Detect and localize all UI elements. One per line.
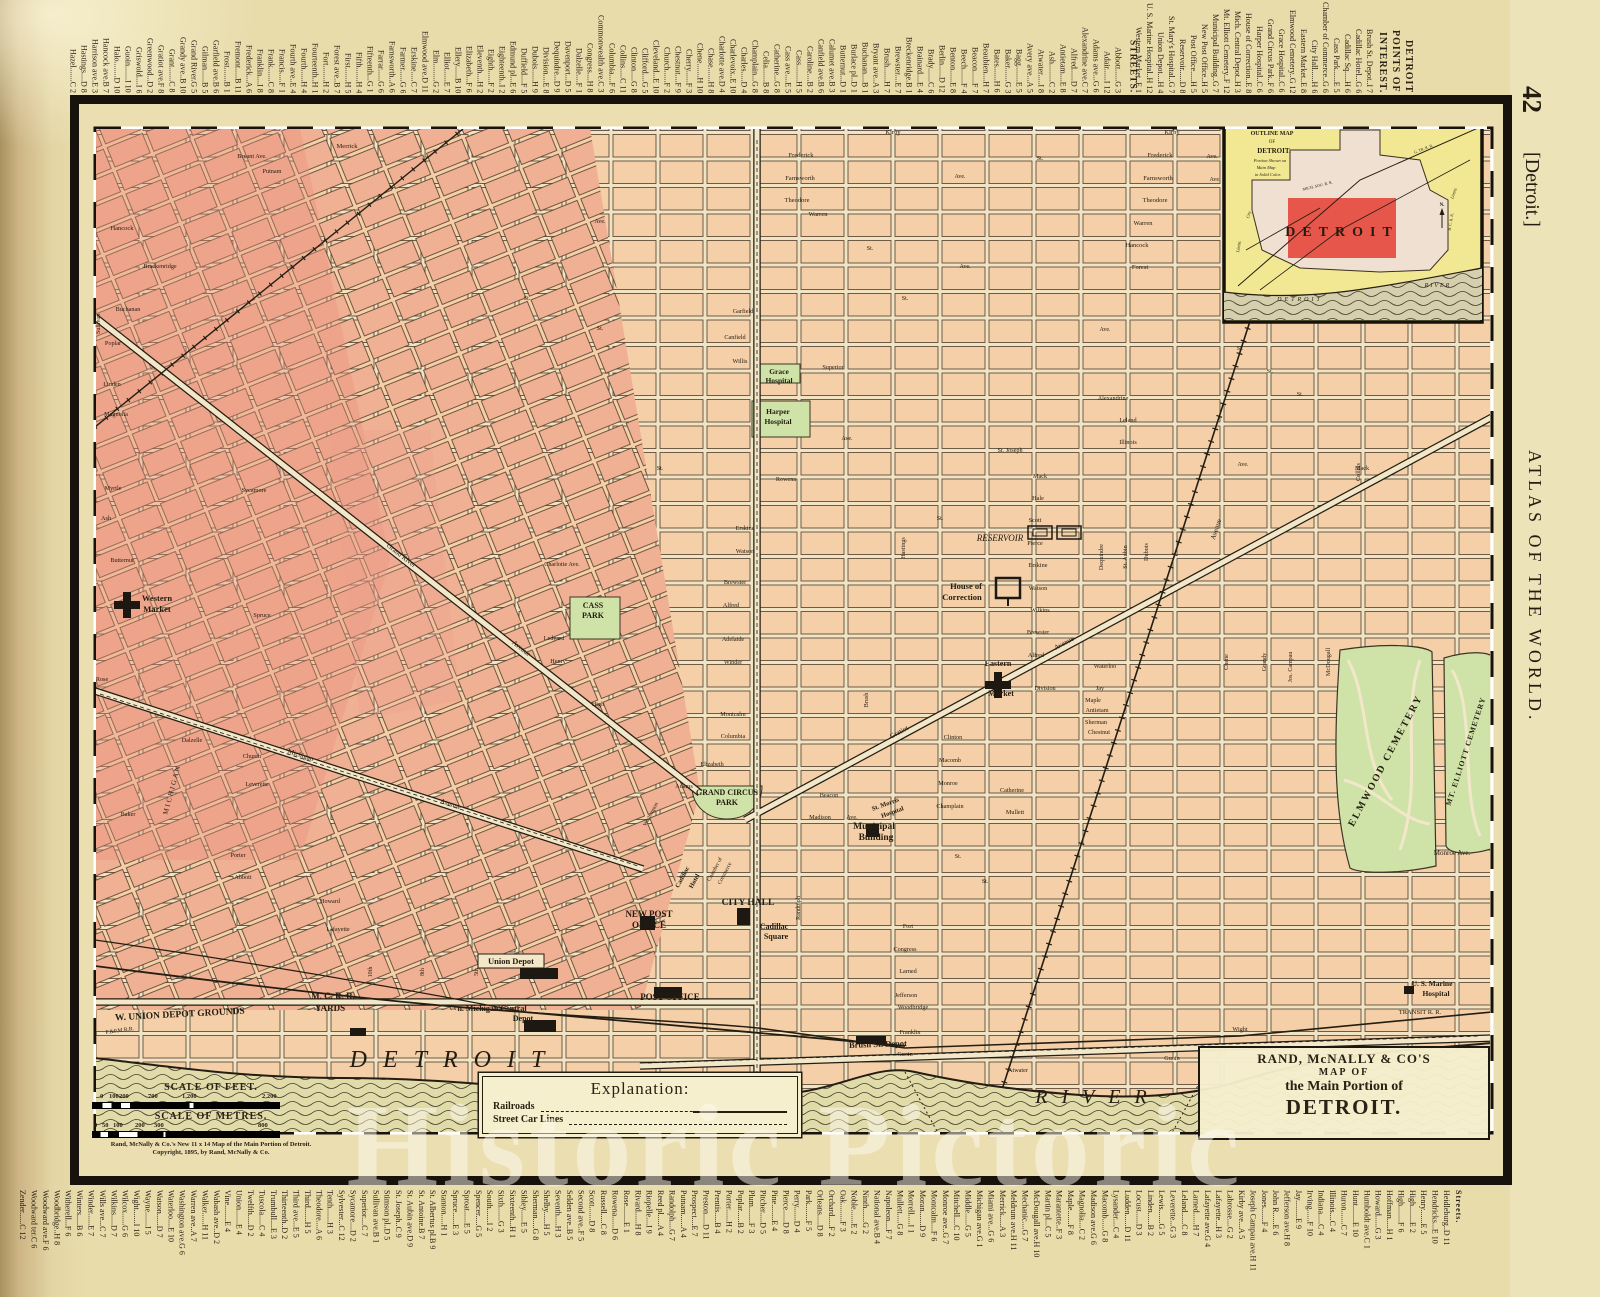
map-label: PARK (582, 611, 605, 620)
street-index-entry: Bryant ave..A 3 (870, 0, 881, 93)
map-label: CASS (583, 601, 604, 610)
legend-streetcar-label: Street Car Lines (493, 1114, 563, 1125)
map-label: St. (1267, 369, 1274, 375)
poi-entry: Chamber of Commerce..G 6 (1320, 0, 1331, 93)
scale-tick: 100 (113, 1122, 123, 1129)
scale-tick: 200 (119, 1093, 129, 1100)
street-index-entry: Breckenridge.B 1 (903, 0, 914, 93)
poi-title-line: POINTS OF (1388, 0, 1401, 93)
street-index-entry: St. Albertus pl.B 9 (427, 1190, 438, 1297)
scale-tick: 100 (109, 1093, 119, 1100)
map-label: Hospital (1422, 989, 1449, 998)
street-index-entry: Moran.......D 9 (917, 1190, 928, 1297)
street-index-entry: Shelby......H 5 (541, 1190, 552, 1297)
street-index-entry: Church......F 2 (661, 0, 672, 93)
street-index-entry: Lafayette ave.G 4 (1201, 1190, 1212, 1297)
street-index-entry: Ludden......D 11 (1122, 1190, 1133, 1297)
map-label: Ave. (846, 814, 858, 821)
map-label: Chestnut (1088, 729, 1110, 736)
map-label: Brewster (1027, 629, 1049, 636)
street-index-entry: Fremont.....B 11 (232, 0, 243, 93)
street-index-entry: Tuscola.....C 4 (256, 1190, 267, 1297)
map-label: Dubois (1143, 542, 1150, 560)
map-label: GRAND CIRCUS (696, 788, 759, 797)
map-label: Fort (903, 923, 914, 930)
map-label: Ave. (1209, 177, 1221, 183)
map-label: Ave. (959, 264, 971, 270)
map-label: YARDS (315, 1003, 345, 1013)
map-label: OF (1269, 140, 1276, 145)
street-index-entry: Marantette..F 3 (1053, 1190, 1064, 1297)
map-label: n. Michigan Central (457, 1004, 527, 1013)
street-index-entry: Jay.........E 9 (1293, 1190, 1304, 1297)
map-label: Grace (769, 367, 789, 376)
map-label: POST OFFICE (640, 992, 700, 1002)
street-index-entry: Erskine.....C 7 (408, 0, 419, 93)
street-index-entry: Wight.......I 10 (131, 1190, 142, 1297)
street-index-entry: Elliot......E 7 (441, 0, 452, 93)
map-label: Magnolia (104, 411, 128, 418)
map-label: Dequindre (1098, 544, 1105, 570)
map-label: CITY HALL (722, 898, 775, 908)
street-index-entry: Beaubien....H 7 (980, 0, 991, 93)
street-index-entry: Atwater.....I 8 (1035, 0, 1046, 93)
poi-entry: House of Correction..E 8 (1243, 0, 1254, 93)
map-label: Antietam (1085, 707, 1108, 714)
street-index-entry: Berlin......D 12 (936, 0, 947, 93)
poi-entry: U. S. Marine Hospital..H 12 (1144, 0, 1155, 93)
street-index-entry: Oak.........F 3 (837, 1190, 848, 1297)
map-label: Ledyard (544, 635, 566, 642)
street-index-entry: Trumbull....E 3 (267, 1190, 278, 1297)
map-label: Jay (1096, 685, 1105, 692)
street-index-entry: Frost.......B 1 (221, 0, 232, 93)
yards-building (350, 1028, 366, 1036)
map-label: Atwater (1008, 1067, 1028, 1074)
inset-outline-map (1224, 114, 1482, 322)
street-index-entry: Napoleon....F 7 (882, 1190, 893, 1297)
map-label: Mack (1033, 473, 1048, 480)
street-index-entry: Spruce......E 3 (450, 1190, 461, 1297)
street-index-entry: Avery ave...A 5 (1024, 0, 1035, 93)
map-label: 8th (420, 968, 426, 976)
map-label: Madison (809, 814, 831, 821)
street-index-entry: Abbott......G 3 (1112, 0, 1123, 93)
publisher-line: RAND, McNALLY & CO'S (1200, 1051, 1488, 1067)
street-index-entry: Perry.......D 4 (791, 1190, 802, 1297)
map-label: Porter (230, 852, 245, 859)
poi-entry: Eastern Market..E 8 (1298, 0, 1309, 93)
street-index-entry: Farmer......G 6 (397, 0, 408, 93)
street-index-entry: Rivard......H 8 (632, 1190, 643, 1297)
street-index-entry: Hancock ave.B 7 (100, 0, 111, 93)
map-label: Erskine (736, 525, 755, 532)
poi-entry: Harper Hospital..C 6 (1254, 0, 1265, 93)
street-index-top: DETROIT POINTS OF INTEREST. Brush St. De… (86, 0, 1414, 93)
street-index-entry: Rose........E 1 (620, 1190, 631, 1297)
street-index-entry: High........E 2 (1406, 1190, 1417, 1297)
street-index-entry: Chase.......H 8 (705, 0, 716, 93)
street-index-entry: Collins.....C 11 (617, 0, 628, 93)
map-label: Watson (1029, 585, 1047, 592)
map-label: Waterloo (1094, 663, 1117, 670)
street-index-entry: Brady.......C 6 (925, 0, 936, 93)
street-index-entry: Calumet ave.B 3 (826, 0, 837, 93)
street-index-entry: Seventh.....H 3 (552, 1190, 563, 1297)
street-index-entry: Reed pl.....A 4 (655, 1190, 666, 1297)
map-label: RESERVOIR (976, 533, 1024, 543)
map-label: Woodbridge (898, 1004, 929, 1011)
street-index-entry: Noble.......E 2 (848, 1190, 859, 1297)
street-index-entry: First.......H 5 (342, 0, 353, 93)
map-label: Ave. (954, 174, 966, 180)
map-label: St. (1037, 156, 1044, 162)
map-label: Butternut (110, 557, 134, 564)
atlas-page: DETROIT POINTS OF INTEREST. Brush St. De… (0, 0, 1600, 1297)
map-label: High (592, 701, 605, 708)
street-index-entry: Witherell...F 6 (62, 1190, 73, 1297)
street-index-entry: Morrell.....I 1 (905, 1190, 916, 1297)
legend-box: Explanation: Railroads Street Car Lines (482, 1076, 798, 1134)
street-index-entry: Commonwealth ave.C 3 (595, 0, 606, 93)
edition-label: [Detroit.] (1520, 152, 1543, 227)
poi-entry: City Hall......H 6 (1309, 0, 1320, 93)
street-index-entry: Third.......H 5 (302, 1190, 313, 1297)
street-index-entry: Wilkins.....D 7 (108, 1190, 119, 1297)
scale-metres-ticks: 050100200300800 (86, 1122, 336, 1131)
street-index-entry: Woodbridge..H 8 (51, 1190, 62, 1297)
scale-tick: 200 (135, 1122, 145, 1129)
detroit-city-map: GRAND CIRCUSPARKCASSPARKGraceHospitalHar… (70, 95, 1512, 1185)
street-index-entry: Porter......H 2 (723, 1190, 734, 1297)
street-index-entry: Randolph....G 7 (666, 1190, 677, 1297)
poi-entry: Elmwood Cemetery..G 12 (1287, 0, 1298, 93)
map-label: Sullivan (96, 314, 102, 334)
scale-metres-bar (92, 1131, 280, 1138)
map-label: St. (1237, 346, 1244, 352)
street-index-entry: Halo........D 10 (111, 0, 122, 93)
street-index-entry: Meldrum ave.H 11 (1008, 1190, 1019, 1297)
street-index-entry: Warren ave..A 7 (188, 1190, 199, 1297)
poi-entry: St. Mary's Hospital..G 7 (1166, 0, 1177, 93)
street-index-entry: Plum........F 3 (746, 1190, 757, 1297)
street-index-entry: Antietam....E 8 (1057, 0, 1068, 93)
street-index-entry: Hazel.......C 2 (67, 0, 78, 93)
legend-title: Explanation: (493, 1079, 787, 1099)
map-label: Catherine (1000, 787, 1024, 794)
street-index-entry: Grand River.G 5 (188, 0, 199, 93)
street-index-entry: Clifford....G 5 (639, 0, 650, 93)
map-label: U. S. Marine (1412, 979, 1454, 988)
street-index-entry: Sixteenth...H 1 (507, 1190, 518, 1297)
map-label: 10th (368, 967, 374, 978)
street-index-entry: Edmund pl...E 6 (507, 0, 518, 93)
map-label: Correction (942, 592, 982, 602)
western-market-cross (114, 601, 140, 609)
street-index-entry: Celia.......B 8 (760, 0, 771, 93)
street-index-entry: Walker......H 11 (199, 1190, 210, 1297)
street-index-entry: Dubois......H 9 (529, 0, 540, 93)
street-index-entry: Cherry......F 3 (683, 0, 694, 93)
poi-entry: New Post Office..H 5 (1199, 0, 1210, 93)
map-label: DETROIT. (1257, 147, 1291, 155)
street-index-entry: Fifth.......H 4 (353, 0, 364, 93)
map-label: Hancock (110, 225, 134, 232)
map-label: Dalzelle (182, 737, 203, 744)
map-label: Merrick (337, 143, 359, 150)
street-index-entry: Wayne.......I 5 (142, 1190, 153, 1297)
street-index-entry: Maple.......F 8 (1065, 1190, 1076, 1297)
street-index-entry: Adair......I 12 (1101, 0, 1112, 93)
map-label: Scott (1029, 517, 1042, 524)
street-index-entry: Linden......B 2 (1144, 1190, 1155, 1297)
street-index-entry: Brewster....E 7 (892, 0, 903, 93)
street-index-entry: High........F 6 (1395, 1190, 1406, 1297)
map-label: NEW POST (625, 909, 672, 919)
poi-entry: Municipal Building..G 7 (1210, 0, 1221, 93)
map-of-line: MAP OF (1200, 1067, 1488, 1078)
street-index-entry: Sibley......E 5 (518, 1190, 529, 1297)
scale-feet-bar (92, 1102, 280, 1109)
street-index-entry: Winder......E 7 (85, 1190, 96, 1297)
street-index-entry: Eighth......F 2 (485, 0, 496, 93)
map-label: Sycamore (242, 487, 267, 494)
map-label: Linden (103, 381, 121, 388)
city-hall-building (737, 908, 750, 925)
poi-title-line: INTEREST. (1375, 0, 1388, 93)
street-index-entry: Benton......E 8 (947, 0, 958, 93)
poi-entry: Reservoir......D 8 (1177, 0, 1188, 93)
street-index-entry: Indiana.....C 4 (1315, 1190, 1326, 1297)
street-index-entry: Chene.......H 10 (694, 0, 705, 93)
street-index-entry: Sycamore....D 2 (347, 1190, 358, 1297)
street-index-entry: Elmwood ave.D 11 (419, 0, 430, 93)
map-label: St. Aubin (1122, 545, 1129, 568)
map-label: PARK (716, 798, 739, 807)
street-index-entry: Fourth ave..E 4 (287, 0, 298, 93)
map-label: St. (657, 466, 664, 472)
street-index-entry: Lysander....C 4 (1110, 1190, 1121, 1297)
street-index-entry: Griswold....I 6 (133, 0, 144, 93)
street-index-entry: Clinton.....G 8 (628, 0, 639, 93)
street-index-entry: Bates.......H 6 (991, 0, 1002, 93)
map-label: Warren (1134, 220, 1154, 227)
map-label: Henry (550, 658, 566, 665)
street-index-entry: Macomb......G 8 (1099, 1190, 1110, 1297)
street-index-entry: Orleans.....D 8 (814, 1190, 825, 1297)
map-label: St. (902, 296, 909, 302)
street-index-entry: Prospect....E 7 (689, 1190, 700, 1297)
map-label: Warren (809, 211, 829, 218)
map-label: Farnsworth (1143, 175, 1173, 182)
map-label: St. (982, 879, 989, 885)
map-label: St. (1297, 392, 1304, 398)
map-label: Wight (1232, 1026, 1247, 1033)
street-index-entry: Pierce......D 8 (780, 1190, 791, 1297)
street-index-entry: Hendricks...E 10 (1429, 1190, 1440, 1297)
map-label: Willis (733, 358, 748, 365)
map-label: Jos. Campau (1288, 652, 1294, 683)
map-label: Charlotte Ave. (544, 561, 580, 568)
street-index-entry: Monroe ave..G 7 (939, 1190, 950, 1297)
street-index-entry: Congress....H 8 (584, 0, 595, 93)
map-label: Guoin (897, 1051, 912, 1058)
street-index-entry: Buchanan....B 1 (859, 0, 870, 93)
street-index-entry: Garfield ave.B 6 (210, 0, 221, 93)
street-index-entry: Caroline....B 2 (804, 0, 815, 93)
street-index-entry: Mullett.....G 8 (894, 1190, 905, 1297)
streetcar-line-sample (569, 1118, 787, 1125)
map-label: RIVER (1034, 1086, 1161, 1108)
street-index-entry: Frank.......C 8 (265, 0, 276, 93)
street-index-entry: Miami ave...G 6 (985, 1190, 996, 1297)
street-index-entry: Francis.....F 1 (276, 0, 287, 93)
street-index-entry: Hunt........E 10 (1349, 1190, 1360, 1297)
street-index-entry: Sullivan ave.B 1 (370, 1190, 381, 1297)
map-label: Montcalm (720, 711, 746, 718)
street-index-entry: Duffield....F 5 (518, 0, 529, 93)
poi-entry: Mich. Central Depot..H 3 (1232, 0, 1243, 93)
map-label: Myrtle (105, 485, 122, 492)
street-index-entry: Jones.......F 4 (1258, 1190, 1269, 1297)
street-index-entry: Leland......C 8 (1179, 1190, 1190, 1297)
map-label: Main Map (1256, 165, 1277, 170)
map-label: Illinois (1119, 439, 1137, 446)
street-index-entry: Cass........H 5 (793, 0, 804, 93)
map-label: Division (1034, 685, 1055, 692)
map-label: Wilkins (1030, 607, 1050, 614)
map-label: Brewster (724, 579, 746, 586)
map-label: Hastings (900, 537, 907, 559)
street-index-entry: St. Joseph..C 9 (393, 1190, 404, 1297)
map-label: Bryant Ave. (237, 153, 267, 160)
street-index-entry: Magnolia....C 2 (1076, 1190, 1087, 1297)
running-title: ATLAS OF THE WORLD. (1524, 450, 1545, 723)
street-index-entry: Sherman.....G 8 (529, 1190, 540, 1297)
map-label: Depot (513, 1014, 534, 1023)
map-label: Erskine (1029, 562, 1048, 569)
map-label: Farnsworth (785, 175, 815, 182)
map-label: Theodore (1143, 197, 1168, 204)
scale-tick: 50 (102, 1122, 109, 1129)
map-content (95, 114, 1494, 1133)
street-index-entry: Superior....C 7 (359, 1190, 370, 1297)
street-index-entry: Gilman......B 5 (199, 0, 210, 93)
map-label: Alfred (723, 602, 740, 609)
street-index-entry: Madison ave.G 6 (1088, 1190, 1099, 1297)
map-label: Chene (1223, 654, 1230, 670)
eastern-market-cross (985, 681, 1011, 689)
street-index-entry: McDougall ave.H 10 (1031, 1190, 1042, 1297)
street-index-entry: Cass ave....E 5 (782, 0, 793, 93)
street-index-entry: Irving......F 10 (1304, 1190, 1315, 1297)
map-label: Pierce (1027, 540, 1043, 547)
street-index-entry: Locust......D 3 (1133, 1190, 1144, 1297)
map-label: Columbia (721, 733, 746, 740)
street-index-entry: Tenth.......H 3 (324, 1190, 335, 1297)
scale-bars: SCALE OF FEET. 01002007001,2002,200 SCAL… (86, 1082, 336, 1157)
street-list-h-z: Heidleburg..D 11Hendricks...E 10Henry...… (88, 1190, 1452, 1297)
map-label: OFFICE (632, 920, 666, 930)
map-label: St. (597, 326, 604, 332)
street-index-entry: Ellery......B 10 (452, 0, 463, 93)
map-label: Hancock (1125, 242, 1149, 249)
map-label: Congress (893, 946, 917, 953)
street-index-entry: Martin pl...C 5 (1042, 1190, 1053, 1297)
street-index-entry: Grant.......C 8 (166, 0, 177, 93)
street-index-entry: Woodward ave.F 6 (40, 1190, 51, 1297)
street-index-entry: Beacon......F 7 (969, 0, 980, 93)
streets-header-bottom: Streets. (1452, 1190, 1464, 1297)
map-label: Portion Shown on (1253, 158, 1287, 163)
street-index-entry: Zender......C 12 (17, 1190, 28, 1297)
map-label: Putnam (263, 168, 282, 175)
street-index-entry: Jefferson ave.H 8 (1281, 1190, 1292, 1297)
street-index-entry: Franklin....I 8 (254, 0, 265, 93)
map-label: St. (955, 854, 962, 860)
street-index-entry: Merrick.....A 3 (996, 1190, 1007, 1297)
map-label: Eastern (985, 659, 1012, 668)
poi-list: Brush St. Depot..I 7Cadillac Hotel...G 6… (1137, 0, 1375, 93)
street-index-bottom: Streets. Heidleburg..D 11Hendricks...E 1… (88, 1190, 1464, 1297)
street-index-entry: Gratiot ave.F 8 (155, 0, 166, 93)
street-index-entry: Fifteenth...G 1 (364, 0, 375, 93)
map-label: Poplar (105, 340, 121, 347)
street-index-entry: Harrison ave.E 3 (89, 0, 100, 93)
map-label: St. (937, 516, 944, 522)
street-index-entry: Davenport...D 5 (562, 0, 573, 93)
street-index-entry: Cleveland...E 10 (650, 0, 661, 93)
map-label: Ave. (1099, 327, 1111, 333)
map-label: 5th (474, 968, 480, 976)
map-label: House of (950, 581, 982, 591)
map-label: Guoin (1164, 1055, 1179, 1062)
street-index-entry: Adams ave...G 6 (1090, 0, 1101, 93)
map-label: Clinton (944, 734, 963, 741)
map-label: DETROIT (349, 1047, 561, 1073)
map-label: Kirby (885, 129, 901, 136)
street-index-entry: Canfield ave.B 6 (815, 0, 826, 93)
map-label: Union Depot (488, 956, 534, 966)
copyright-line: Rand, McNally & Co.'s New 11 x 14 Map of… (86, 1141, 336, 1149)
map-label: Cadillac (760, 922, 789, 931)
map-label: Hale (1032, 495, 1044, 502)
street-index-entry: Prentis.....B 4 (712, 1190, 723, 1297)
map-label: Brush St. Depot (849, 1038, 907, 1050)
map-label: in Solid Color. (1255, 172, 1281, 177)
street-index-entry: Leverette...G 3 (1167, 1190, 1178, 1297)
map-label: Beacon (820, 792, 839, 799)
street-index-entry: John R......E 6 (1270, 1190, 1281, 1297)
street-index-entry: Fort........H 2 (320, 0, 331, 93)
street-index-entry: Ninth.......G 2 (860, 1190, 871, 1297)
street-index-entry: Mechanic....G 7 (1019, 1190, 1030, 1297)
map-label: Elizabeth (700, 761, 724, 768)
poi-entry: Grand Circus Park..F 6 (1265, 0, 1276, 93)
map-label: RIVER (1424, 283, 1452, 289)
map-label: Alexandrine (1098, 395, 1129, 402)
street-index-entry: Michigan ave.G 1 (974, 1190, 985, 1297)
map-label: Monroe Ave. (1434, 849, 1471, 857)
poi-entry: Cadillac Sq.....H 6 (1342, 0, 1353, 93)
legend-railroads-label: Railroads (493, 1101, 535, 1112)
street-index-entry: Theodore....A 6 (313, 1190, 324, 1297)
street-index-entry: South.......I 2 (484, 1190, 495, 1297)
street-index-entry: Catherine...G 8 (771, 0, 782, 93)
map-label: Theodore (785, 197, 810, 204)
map-label: Kirby (1164, 129, 1180, 136)
street-index-entry: Beech.......F 4 (958, 0, 969, 93)
